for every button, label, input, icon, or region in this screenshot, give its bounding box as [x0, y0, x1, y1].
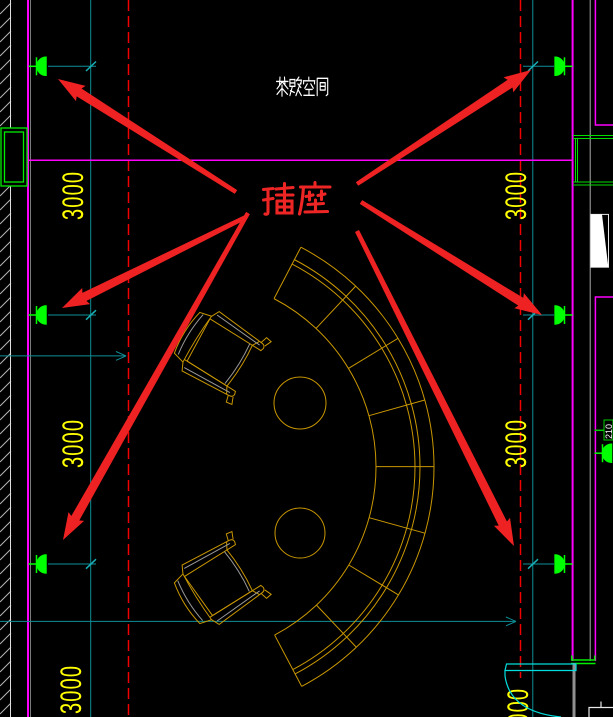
svg-text:3000: 3000	[55, 666, 88, 714]
svg-text:3000: 3000	[500, 172, 533, 220]
svg-text:3000: 3000	[502, 689, 535, 717]
svg-text:210: 210	[604, 424, 613, 439]
svg-text:3000: 3000	[57, 172, 90, 220]
svg-text:3000: 3000	[57, 420, 90, 468]
svg-text:3000: 3000	[500, 420, 533, 468]
